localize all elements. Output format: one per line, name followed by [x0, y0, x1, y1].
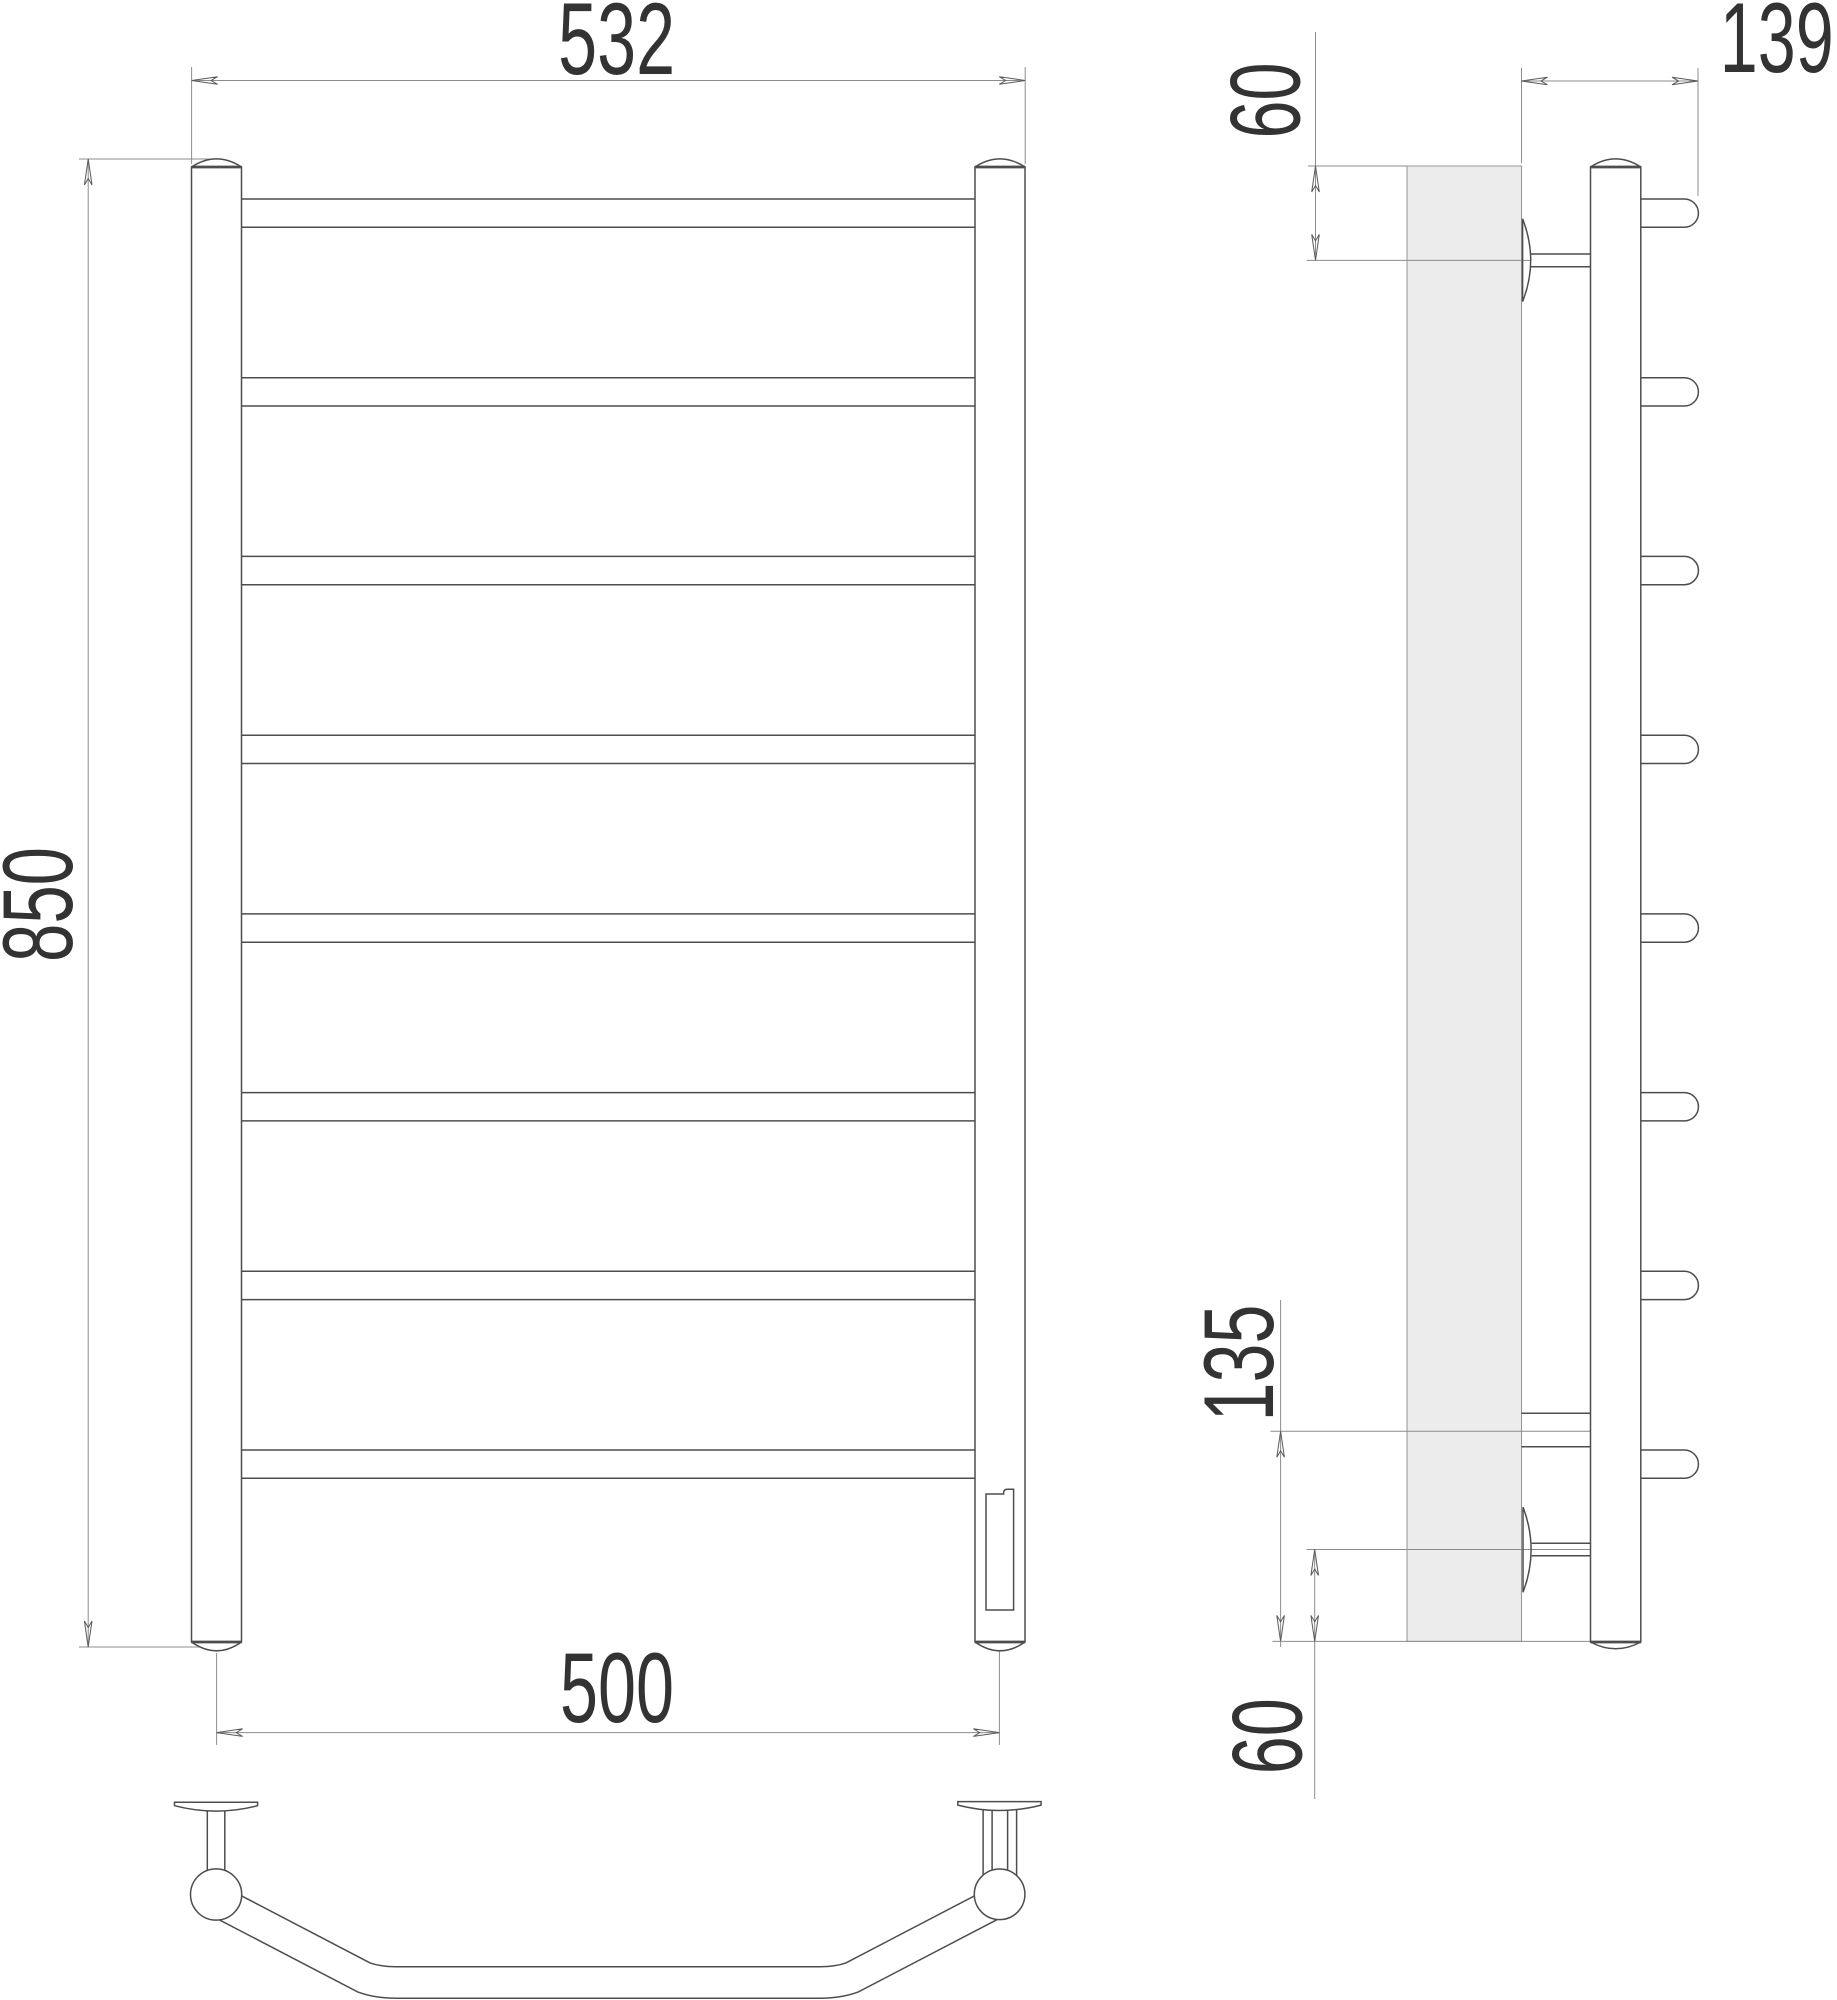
svg-text:850: 850: [0, 847, 93, 962]
svg-text:60: 60: [1210, 63, 1321, 139]
svg-text:139: 139: [1720, 0, 1834, 93]
svg-text:500: 500: [560, 1632, 674, 1743]
svg-text:135: 135: [1183, 1305, 1294, 1422]
svg-text:532: 532: [558, 0, 675, 96]
svg-text:60: 60: [1212, 1698, 1323, 1774]
